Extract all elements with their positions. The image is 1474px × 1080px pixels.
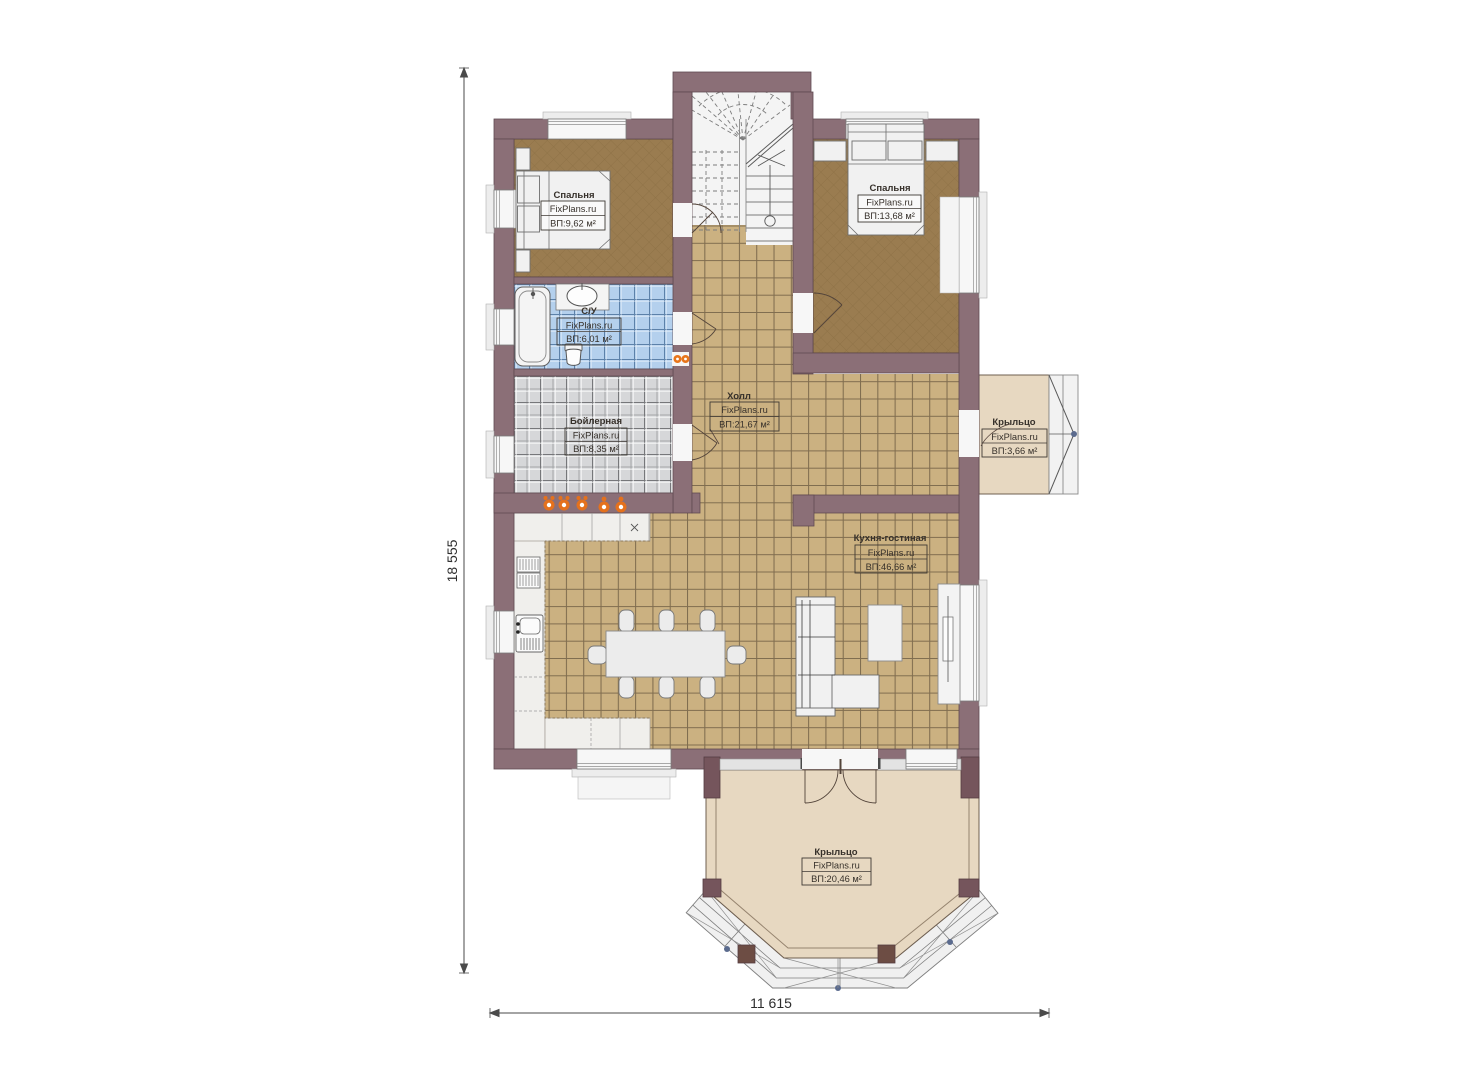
svg-text:ВП:8,35 м²: ВП:8,35 м²	[573, 444, 619, 454]
svg-text:Крыльцо: Крыльцо	[992, 417, 1035, 428]
svg-text:Крыльцо: Крыльцо	[814, 847, 857, 858]
svg-text:FixPlans.ru: FixPlans.ru	[550, 204, 597, 214]
svg-text:FixPlans.ru: FixPlans.ru	[868, 548, 915, 558]
svg-text:11 615: 11 615	[750, 995, 792, 1011]
svg-text:ВП:13,68 м²: ВП:13,68 м²	[864, 211, 915, 221]
svg-text:18 555: 18 555	[444, 539, 460, 582]
svg-text:FixPlans.ru: FixPlans.ru	[813, 861, 860, 871]
svg-text:ВП:3,66 м²: ВП:3,66 м²	[992, 446, 1038, 456]
svg-text:ВП:21,67 м²: ВП:21,67 м²	[719, 420, 770, 430]
svg-text:Холл: Холл	[727, 391, 751, 402]
svg-text:FixPlans.ru: FixPlans.ru	[566, 321, 613, 331]
svg-text:ВП:20,46 м²: ВП:20,46 м²	[811, 874, 862, 884]
svg-text:FixPlans.ru: FixPlans.ru	[573, 431, 620, 441]
svg-text:FixPlans.ru: FixPlans.ru	[991, 432, 1038, 442]
svg-text:FixPlans.ru: FixPlans.ru	[721, 405, 768, 415]
svg-text:Кухня-гостиная: Кухня-гостиная	[854, 533, 927, 544]
svg-text:Спальня: Спальня	[869, 183, 910, 194]
svg-text:Бойлерная: Бойлерная	[570, 416, 622, 427]
svg-text:ВП:6,01 м²: ВП:6,01 м²	[566, 334, 612, 344]
svg-text:ВП:9,62 м²: ВП:9,62 м²	[550, 219, 596, 229]
svg-text:FixPlans.ru: FixPlans.ru	[866, 198, 913, 208]
svg-text:С/У: С/У	[581, 306, 597, 317]
svg-text:Спальня: Спальня	[553, 190, 594, 201]
svg-text:ВП:46,66 м²: ВП:46,66 м²	[866, 562, 917, 572]
